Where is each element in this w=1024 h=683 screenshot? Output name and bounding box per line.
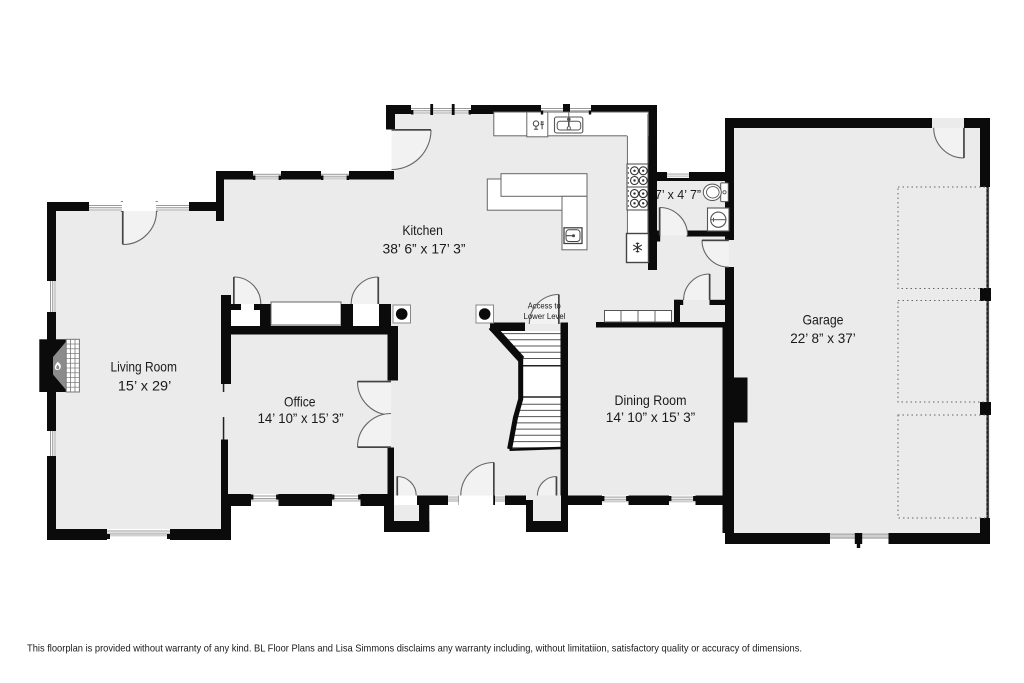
svg-text:Lower Level: Lower Level [524, 311, 566, 321]
svg-text:14’ 10” x 15’ 3”: 14’ 10” x 15’ 3” [258, 410, 344, 426]
svg-text:Access to: Access to [528, 301, 561, 311]
svg-text:Kitchen: Kitchen [402, 222, 443, 238]
svg-text:Dining Room: Dining Room [615, 392, 687, 408]
svg-text:14’ 10” x 15’ 3”: 14’ 10” x 15’ 3” [606, 409, 696, 425]
svg-text:This floorplan is provided wit: This floorplan is provided without warra… [27, 643, 802, 655]
svg-text:15’ x 29’: 15’ x 29’ [118, 377, 172, 393]
svg-text:38’ 6” x 17’ 3”: 38’ 6” x 17’ 3” [383, 241, 466, 257]
svg-text:Office: Office [284, 394, 316, 410]
svg-text:Living Room: Living Room [110, 358, 177, 374]
svg-text:22’ 8” x 37’: 22’ 8” x 37’ [790, 330, 856, 346]
svg-text:Garage: Garage [803, 311, 844, 327]
svg-text:7’ x 4’ 7”: 7’ x 4’ 7” [655, 188, 701, 202]
